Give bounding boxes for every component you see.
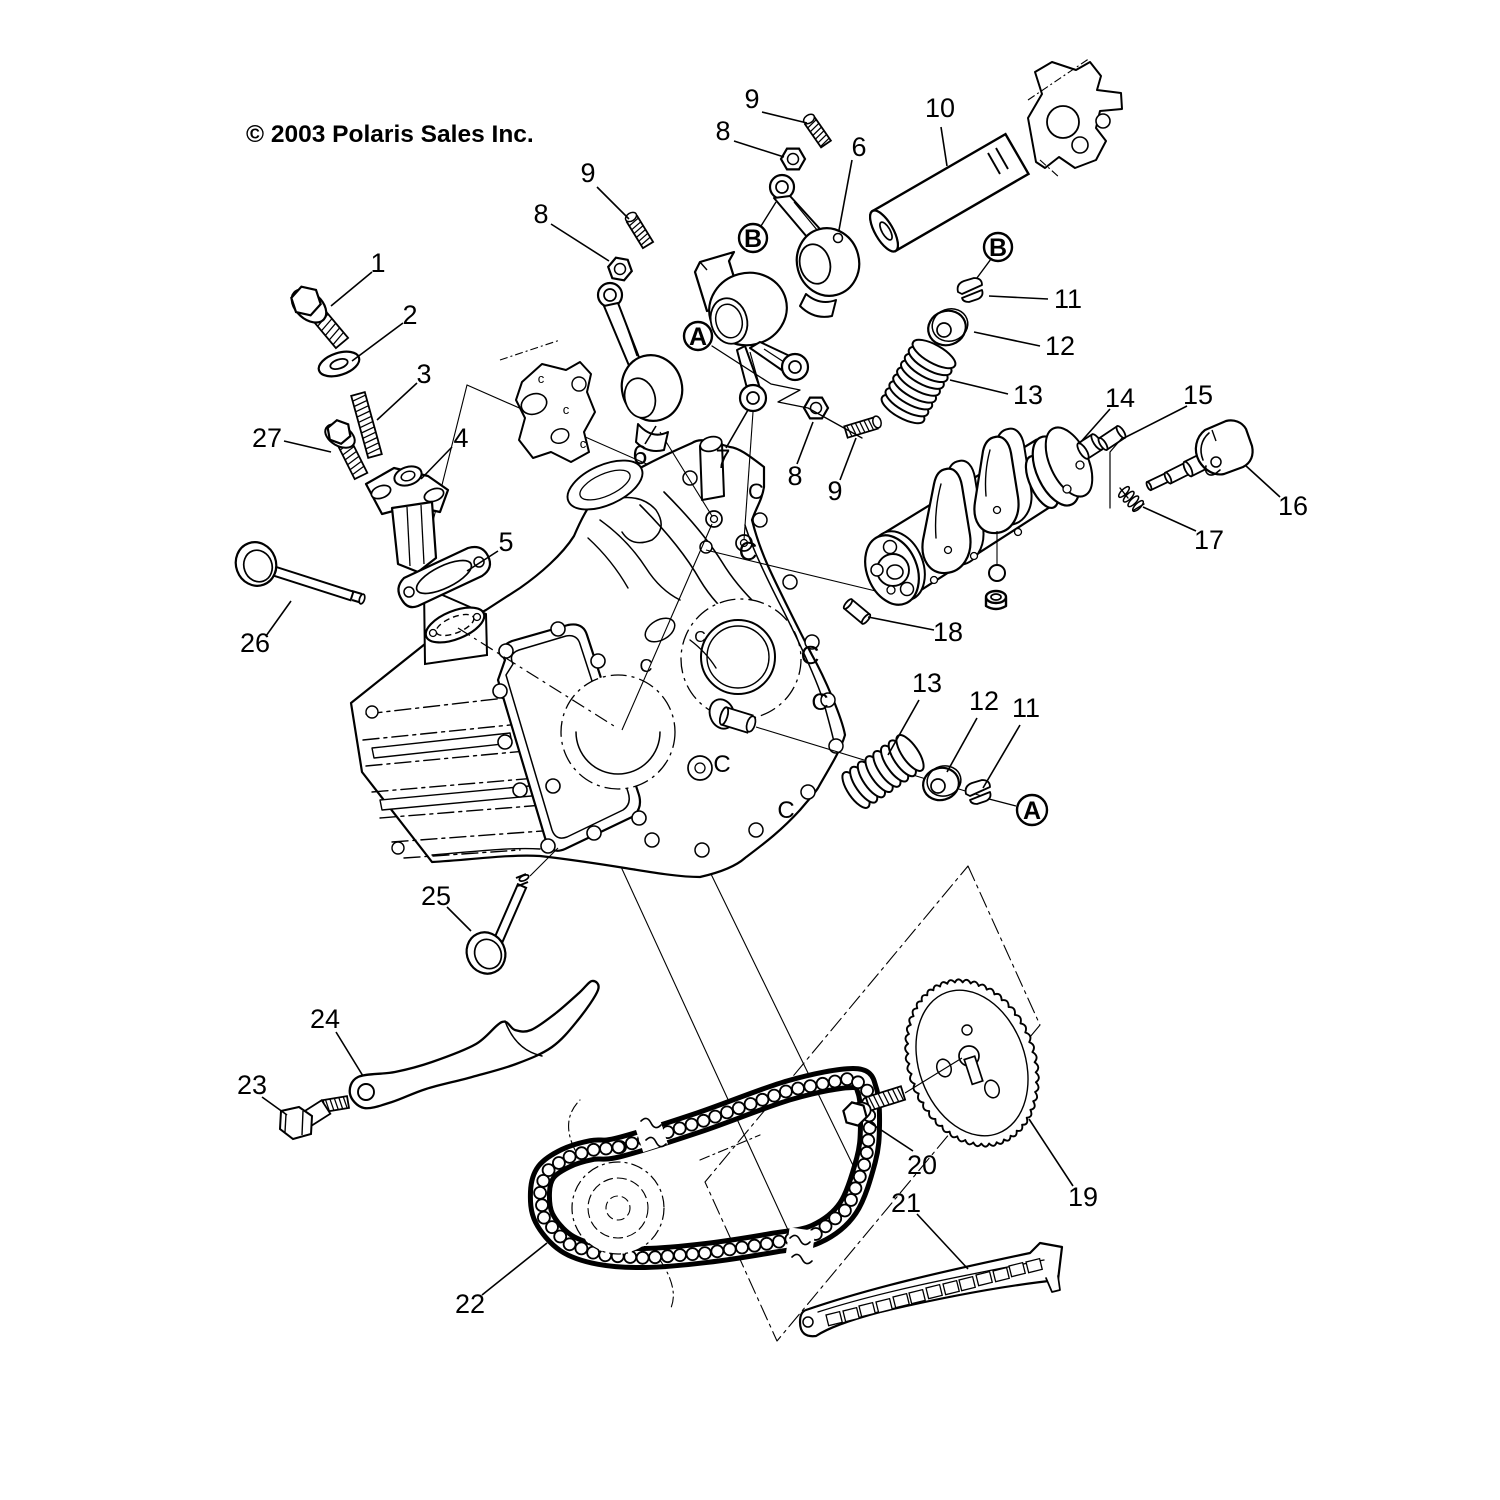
svg-text:16: 16 (1278, 491, 1308, 521)
svg-text:8: 8 (533, 199, 548, 229)
svg-text:8: 8 (715, 116, 730, 146)
svg-text:14: 14 (1105, 383, 1135, 413)
svg-text:5: 5 (498, 527, 513, 557)
svg-text:12: 12 (969, 686, 999, 716)
svg-text:c: c (563, 402, 570, 417)
svg-text:7: 7 (715, 444, 730, 474)
svg-text:11: 11 (1012, 693, 1040, 723)
svg-text:10: 10 (925, 93, 955, 123)
svg-text:A: A (689, 323, 707, 351)
svg-text:18: 18 (933, 617, 963, 647)
svg-text:c: c (580, 436, 587, 451)
svg-text:9: 9 (580, 158, 595, 188)
svg-text:9: 9 (827, 476, 842, 506)
svg-text:C: C (801, 640, 820, 670)
svg-text:C: C (777, 797, 794, 824)
svg-text:C: C (694, 629, 706, 646)
svg-text:13: 13 (912, 668, 942, 698)
svg-text:19: 19 (1068, 1182, 1098, 1212)
svg-text:15: 15 (1183, 380, 1213, 410)
svg-text:26: 26 (240, 628, 270, 658)
svg-text:23: 23 (237, 1070, 267, 1100)
svg-text:22: 22 (455, 1289, 485, 1319)
svg-text:B: B (744, 225, 762, 253)
svg-text:9: 9 (744, 84, 759, 114)
svg-text:12: 12 (1045, 331, 1075, 361)
svg-text:27: 27 (252, 423, 282, 453)
svg-text:1: 1 (370, 248, 385, 278)
svg-text:17: 17 (1194, 525, 1224, 555)
svg-text:21: 21 (891, 1188, 921, 1218)
svg-text:13: 13 (1013, 380, 1043, 410)
svg-text:8: 8 (787, 461, 802, 491)
svg-text:6: 6 (632, 440, 647, 470)
svg-text:6: 6 (851, 132, 866, 162)
svg-text:4: 4 (453, 423, 468, 453)
svg-text:2: 2 (402, 300, 417, 330)
svg-text:C: C (748, 479, 764, 504)
svg-text:© 2003 Polaris Sales Inc.: © 2003 Polaris Sales Inc. (246, 121, 534, 148)
svg-text:3: 3 (416, 359, 431, 389)
svg-text:c: c (538, 371, 545, 386)
svg-text:11: 11 (1054, 284, 1082, 314)
svg-text:C: C (713, 751, 730, 778)
svg-text:C: C (811, 689, 828, 716)
svg-text:20: 20 (907, 1150, 937, 1180)
svg-text:B: B (989, 234, 1007, 262)
svg-text:25: 25 (421, 881, 451, 911)
svg-text:A: A (1023, 797, 1041, 825)
svg-text:24: 24 (310, 1004, 340, 1034)
